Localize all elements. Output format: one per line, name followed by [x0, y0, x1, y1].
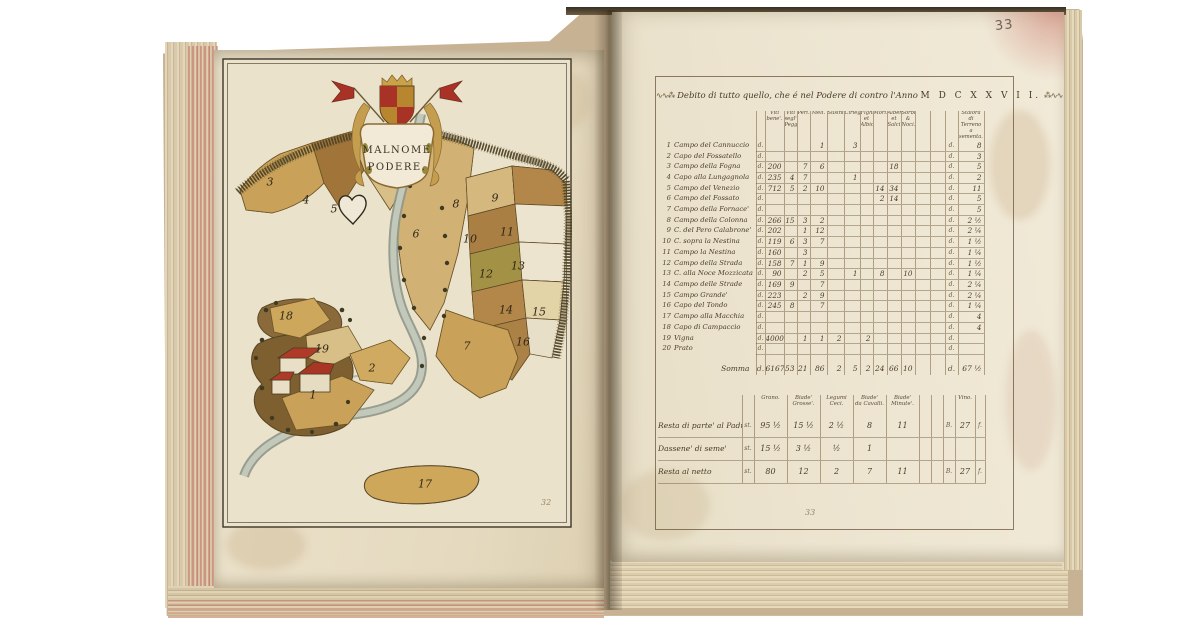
unit-mark: d.	[945, 237, 958, 248]
somma-row: Sommad.6167532186252246610d.67 ½	[658, 362, 1011, 375]
unit-mark: d.	[756, 344, 765, 355]
margin-cell	[985, 461, 1011, 484]
unit-mark: d.	[756, 258, 765, 269]
unit-mark: d.	[756, 194, 765, 205]
debit-table: Viti bene'.Viti segl' Pegg.Peri.Meli.Sus…	[658, 111, 1011, 375]
value-cell	[860, 183, 873, 194]
value-cell	[930, 301, 945, 312]
unit-mark: d.	[945, 333, 958, 344]
value-cell	[765, 151, 784, 162]
value-cell: 1 ¼	[958, 269, 984, 280]
vino-value: 27	[955, 415, 975, 438]
value-cell: 2	[810, 215, 827, 226]
value-cell	[930, 237, 945, 248]
ledger-row: 9C. del Pero Calabrone'd.202112d.2 ¼	[658, 226, 1011, 237]
value-cell	[930, 226, 945, 237]
unit-mark: d.	[945, 226, 958, 237]
value-cell	[810, 172, 827, 183]
value-cell	[887, 237, 901, 248]
row-number: 15	[658, 290, 674, 301]
value-cell: 34	[887, 183, 901, 194]
value-cell	[915, 333, 930, 344]
field-number: 11	[500, 226, 514, 239]
recap-value: 7	[853, 461, 886, 484]
value-cell	[860, 344, 873, 355]
value-cell	[915, 183, 930, 194]
corner-cell	[658, 395, 742, 415]
value-cell	[958, 333, 984, 344]
row-number: 6	[658, 194, 674, 205]
ledger-row: 3Campo della Fognad.2007618d.5	[658, 162, 1011, 173]
margin-cell	[985, 395, 1011, 415]
value-cell: 7	[784, 258, 797, 269]
value-cell	[901, 183, 915, 194]
value-cell	[930, 333, 945, 344]
title-flourish-left: ∿∿⁂	[656, 91, 674, 100]
field-number: 7	[464, 340, 471, 353]
blank-cell	[919, 415, 931, 438]
field-name: Campo della Fogna	[674, 162, 756, 173]
value-cell	[930, 258, 945, 269]
value-cell	[844, 279, 860, 290]
spacer-cell	[827, 354, 844, 362]
unit-mark: d.	[756, 215, 765, 226]
value-cell: 2	[797, 183, 810, 194]
value-cell: 158	[765, 258, 784, 269]
recap-row: Resta al nettost.80122711B.27f.	[658, 461, 1011, 484]
recap-value: 95 ½	[754, 415, 787, 438]
value-cell: 2 ¼	[958, 279, 984, 290]
value-cell	[873, 237, 887, 248]
column-header: Viti bene'.	[765, 111, 784, 141]
value-cell	[844, 215, 860, 226]
value-cell	[827, 312, 844, 323]
value-cell	[860, 162, 873, 173]
value-cell: 2	[958, 172, 984, 183]
unit-mark: d.	[945, 194, 958, 205]
blank-cell	[931, 415, 943, 438]
value-cell	[887, 312, 901, 323]
row-number: 2	[658, 151, 674, 162]
value-cell	[930, 183, 945, 194]
field-number: 2	[369, 362, 376, 375]
vino-unit: f.	[975, 461, 985, 484]
unit-mark: d.	[756, 269, 765, 280]
ledger-title-year: M D C X X V I I.	[921, 91, 1042, 101]
value-cell	[915, 237, 930, 248]
value-cell	[844, 194, 860, 205]
value-cell	[827, 290, 844, 301]
value-cell	[887, 290, 901, 301]
recap-value: 1	[853, 438, 886, 461]
ledger-row: 19Vignad.40001122d.	[658, 333, 1011, 344]
unit-mark: d.	[756, 301, 765, 312]
value-cell	[901, 162, 915, 173]
value-cell: 2	[797, 269, 810, 280]
value-cell	[844, 226, 860, 237]
unit-mark-header	[945, 111, 958, 141]
value-cell: 1 ½	[958, 258, 984, 269]
value-cell	[827, 344, 844, 355]
value-cell	[827, 301, 844, 312]
value-cell	[844, 258, 860, 269]
value-cell	[901, 205, 915, 216]
row-number: 11	[658, 247, 674, 258]
value-cell: 4	[784, 172, 797, 183]
unit-mark: d.	[756, 312, 765, 323]
field-number: 1	[310, 389, 317, 402]
recap-value: 8	[853, 415, 886, 438]
left-page-number: 32	[541, 498, 551, 507]
unit-mark: d.	[756, 322, 765, 333]
field-name: Campo del Cannuccio	[674, 141, 756, 151]
value-cell: 3	[797, 215, 810, 226]
recap-value: ½	[820, 438, 853, 461]
field-number: 15	[532, 306, 546, 319]
value-cell	[860, 247, 873, 258]
book-gutter	[594, 10, 622, 610]
value-cell: 2	[860, 333, 873, 344]
value-cell	[873, 312, 887, 323]
margin-cell	[984, 111, 1011, 141]
value-cell	[901, 279, 915, 290]
column-header: Viti segl' Pegg.	[784, 111, 797, 141]
value-cell: 202	[765, 226, 784, 237]
unit-mark: d.	[945, 215, 958, 226]
spacer-cell	[901, 354, 915, 362]
recap-column-header: Grano.	[754, 395, 787, 415]
field-number: 5	[331, 203, 338, 216]
value-cell	[901, 333, 915, 344]
value-cell	[860, 301, 873, 312]
row-number: 8	[658, 215, 674, 226]
value-cell	[873, 151, 887, 162]
field-name: Campo Grande'	[674, 290, 756, 301]
field-name: Campo la Nestina	[674, 247, 756, 258]
ledger-row: 17Campo alla Macchiad.d.4	[658, 312, 1011, 323]
value-cell	[901, 226, 915, 237]
value-cell	[810, 151, 827, 162]
field-number: 10	[463, 233, 477, 246]
value-cell	[887, 151, 901, 162]
recap-column-header: Legumi Ceci.	[820, 395, 853, 415]
field-number: 13	[511, 260, 525, 273]
blank-cell	[919, 461, 931, 484]
value-cell	[844, 322, 860, 333]
value-cell	[810, 205, 827, 216]
value-cell: 6	[784, 237, 797, 248]
value-cell: 8	[784, 301, 797, 312]
field-number: 14	[499, 304, 513, 317]
value-cell	[827, 183, 844, 194]
value-cell: 4	[958, 312, 984, 323]
column-header: Sorbi, & Noci.	[901, 111, 915, 141]
manuscript-photo: 33	[0, 0, 1200, 628]
value-cell: 245	[765, 301, 784, 312]
value-cell	[810, 344, 827, 355]
value-cell	[797, 141, 810, 151]
unit-mark: d.	[756, 247, 765, 258]
row-number: 19	[658, 333, 674, 344]
value-cell	[784, 151, 797, 162]
somma-value	[915, 362, 930, 375]
field-name: Capo del Fossatello	[674, 151, 756, 162]
value-cell	[901, 312, 915, 323]
somma-value	[930, 362, 945, 375]
value-cell	[860, 194, 873, 205]
vino-value	[955, 438, 975, 461]
spacer-cell	[860, 354, 873, 362]
recap-column-header: Biade' Minute'.	[886, 395, 919, 415]
value-cell	[860, 269, 873, 280]
ledger-row: 15Campo Grande'd.22329d.2 ¼	[658, 290, 1011, 301]
unit-mark: d.	[945, 290, 958, 301]
value-cell: 7	[810, 301, 827, 312]
value-cell	[930, 290, 945, 301]
value-cell: 2	[797, 290, 810, 301]
row-number: 14	[658, 279, 674, 290]
value-cell	[873, 279, 887, 290]
value-cell	[784, 247, 797, 258]
recap-label: Resta al netto	[658, 461, 742, 484]
ledger-row: 5Campo del Veneziod.71252101434d.11	[658, 183, 1011, 194]
somma-value: 10	[901, 362, 915, 375]
spacer-cell	[844, 354, 860, 362]
value-cell	[915, 301, 930, 312]
value-cell: 1	[844, 269, 860, 280]
field-name: Campo alla Macchia	[674, 312, 756, 323]
spacer-cell	[810, 354, 827, 362]
value-cell: 2 ¼	[958, 290, 984, 301]
value-cell: 18	[887, 162, 901, 173]
column-header: Susini.	[827, 111, 844, 141]
vino-unit: B.	[943, 415, 955, 438]
value-cell	[784, 290, 797, 301]
value-cell	[860, 226, 873, 237]
ledger-row: 20Pratod.d.	[658, 344, 1011, 355]
value-cell	[887, 301, 901, 312]
value-cell	[860, 151, 873, 162]
value-cell	[784, 333, 797, 344]
field-number: 8	[453, 198, 460, 211]
blank-header	[975, 395, 985, 415]
value-cell: 10	[901, 269, 915, 280]
value-cell	[765, 312, 784, 323]
margin-cell	[984, 258, 1011, 269]
unit-mark: d.	[756, 226, 765, 237]
value-cell	[887, 322, 901, 333]
row-number: 1	[658, 141, 674, 151]
value-cell	[810, 194, 827, 205]
value-cell	[915, 290, 930, 301]
value-cell	[901, 247, 915, 258]
recap-value: 15 ½	[787, 415, 820, 438]
value-cell	[827, 237, 844, 248]
field-name: Prato	[674, 344, 756, 355]
value-cell	[784, 322, 797, 333]
row-number: 13	[658, 269, 674, 280]
value-cell	[887, 333, 901, 344]
blank-cell	[931, 461, 943, 484]
vino-unit: f.	[975, 415, 985, 438]
margin-cell	[984, 215, 1011, 226]
value-cell	[930, 151, 945, 162]
spacer-cell	[765, 354, 784, 362]
value-cell	[844, 344, 860, 355]
value-cell: 6	[810, 162, 827, 173]
blank-header	[919, 395, 931, 415]
ledger-row: 13C. alla Noce Mozzicatad.90251810d.1 ¼	[658, 269, 1011, 280]
value-cell	[797, 322, 810, 333]
value-cell	[860, 215, 873, 226]
field-name: C. sopra la Nestina	[674, 237, 756, 248]
row-number: 5	[658, 183, 674, 194]
unit-mark: d.	[756, 205, 765, 216]
value-cell: 3	[797, 237, 810, 248]
value-cell	[901, 215, 915, 226]
vino-unit	[975, 438, 985, 461]
value-cell	[887, 226, 901, 237]
margin-cell	[984, 301, 1011, 312]
value-cell: 169	[765, 279, 784, 290]
value-cell	[860, 322, 873, 333]
margin-cell	[984, 312, 1011, 323]
value-cell	[873, 258, 887, 269]
column-header: Mori.	[873, 111, 887, 141]
somma-value: 21	[797, 362, 810, 375]
recap-column-header: Biade' da Cavalli.	[853, 395, 886, 415]
value-cell	[915, 279, 930, 290]
spacer-cell	[784, 354, 797, 362]
value-cell	[765, 141, 784, 151]
value-cell	[915, 247, 930, 258]
field-name: Capo di Campaccio	[674, 322, 756, 333]
value-cell	[784, 269, 797, 280]
unit-mark: d.	[945, 312, 958, 323]
value-cell	[827, 247, 844, 258]
margin-cell	[984, 333, 1011, 344]
value-cell: 9	[784, 279, 797, 290]
value-cell	[810, 322, 827, 333]
margin-cell	[984, 172, 1011, 183]
somma-value: 2	[860, 362, 873, 375]
value-cell	[873, 322, 887, 333]
margin-cell	[984, 141, 1011, 151]
value-cell	[797, 301, 810, 312]
value-cell: 2	[827, 333, 844, 344]
page-stack-right-edge	[1062, 10, 1082, 570]
value-cell	[765, 344, 784, 355]
value-cell	[844, 205, 860, 216]
unit-mark: d.	[756, 162, 765, 173]
value-cell	[873, 172, 887, 183]
unit-mark: d.	[945, 151, 958, 162]
value-cell	[810, 312, 827, 323]
value-cell	[765, 322, 784, 333]
column-header: Meli.	[810, 111, 827, 141]
value-cell	[860, 279, 873, 290]
spacer-cell	[887, 354, 901, 362]
value-cell	[887, 247, 901, 258]
blank-header	[943, 395, 955, 415]
field-number: 17	[418, 478, 432, 491]
value-cell: 7	[797, 162, 810, 173]
value-cell: 266	[765, 215, 784, 226]
ledger-row: 16Capo del Tondod.24587d.1 ¼	[658, 301, 1011, 312]
margin-cell	[984, 183, 1011, 194]
value-cell	[784, 141, 797, 151]
margin-cell	[984, 237, 1011, 248]
spacer-cell	[658, 354, 674, 362]
value-cell: 1	[797, 226, 810, 237]
value-cell	[827, 205, 844, 216]
recap-value: 11	[886, 415, 919, 438]
value-cell: 9	[810, 290, 827, 301]
value-cell	[901, 290, 915, 301]
value-cell	[887, 269, 901, 280]
value-cell	[901, 172, 915, 183]
ledger-title: ∿∿⁂ Debito di tutto quello, che é nel Po…	[656, 91, 1013, 101]
recap-table: Grano.Biade' Grosse'.Legumi Ceci.Biade' …	[658, 395, 1011, 484]
recap-value: 2 ½	[820, 415, 853, 438]
margin-cell	[984, 194, 1011, 205]
value-cell	[901, 258, 915, 269]
margin-cell	[984, 226, 1011, 237]
margin-cell	[984, 344, 1011, 355]
spacer-cell	[930, 354, 945, 362]
margin-cell	[984, 269, 1011, 280]
ledger-row: 4Capo alla Lungagnolad.235471d.2	[658, 172, 1011, 183]
ledger-row: 2Capo del Fossatellod.d.3	[658, 151, 1011, 162]
value-cell	[860, 258, 873, 269]
value-cell	[915, 322, 930, 333]
value-cell	[844, 290, 860, 301]
unit-mark: d.	[945, 162, 958, 173]
value-cell: 160	[765, 247, 784, 258]
field-number: 9	[492, 192, 499, 205]
value-cell	[930, 269, 945, 280]
column-header: Alberi, et Salci.	[887, 111, 901, 141]
estate-name-line2: PODERE.	[368, 162, 427, 173]
field-name: Campo del Venezio	[674, 183, 756, 194]
value-cell	[784, 162, 797, 173]
value-cell	[827, 215, 844, 226]
row-number: 3	[658, 162, 674, 173]
value-cell	[827, 279, 844, 290]
unit-mark-header	[756, 111, 765, 141]
value-cell: 5	[784, 183, 797, 194]
spacer-cell	[756, 354, 765, 362]
value-cell: 2 ¼	[958, 226, 984, 237]
value-cell	[930, 344, 945, 355]
value-cell: 2 ½	[958, 215, 984, 226]
unit-mark: st.	[742, 461, 754, 484]
unit-mark: d.	[945, 322, 958, 333]
value-cell	[901, 322, 915, 333]
value-cell: 7	[810, 237, 827, 248]
value-cell: 2	[873, 194, 887, 205]
recap-value: 2	[820, 461, 853, 484]
unit-mark: d.	[756, 183, 765, 194]
value-cell	[827, 226, 844, 237]
field-name: Campo della Strada	[674, 258, 756, 269]
name-plaque	[360, 124, 433, 188]
recap-column-header: Biade' Grosse'.	[787, 395, 820, 415]
value-cell: 1 ½	[958, 237, 984, 248]
field-name: C. alla Noce Mozzicata	[674, 269, 756, 280]
column-header	[930, 111, 945, 141]
value-cell	[784, 312, 797, 323]
